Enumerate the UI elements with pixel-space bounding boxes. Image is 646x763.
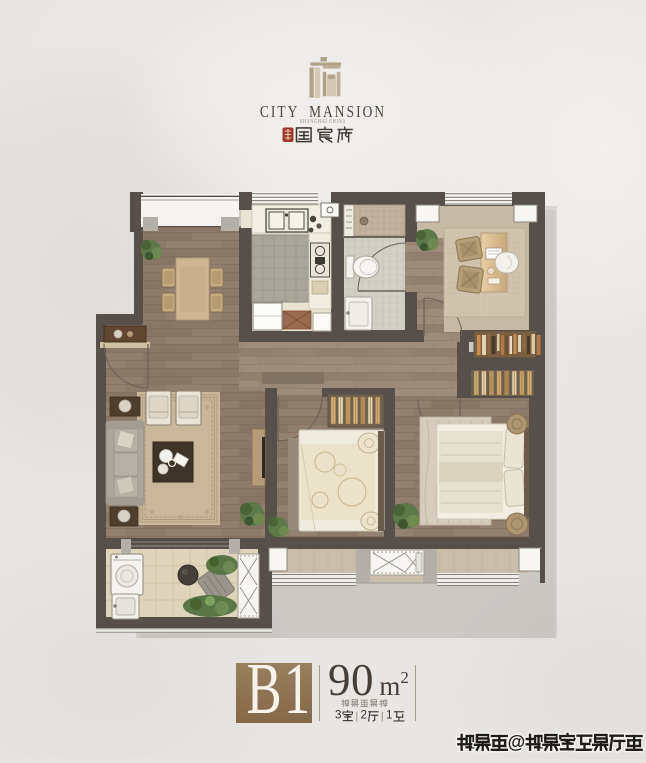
svg-text:2: 2 — [361, 708, 367, 721]
svg-text:3: 3 — [335, 708, 341, 721]
svg-text:@: @ — [508, 732, 526, 752]
svg-text:1: 1 — [386, 708, 392, 721]
